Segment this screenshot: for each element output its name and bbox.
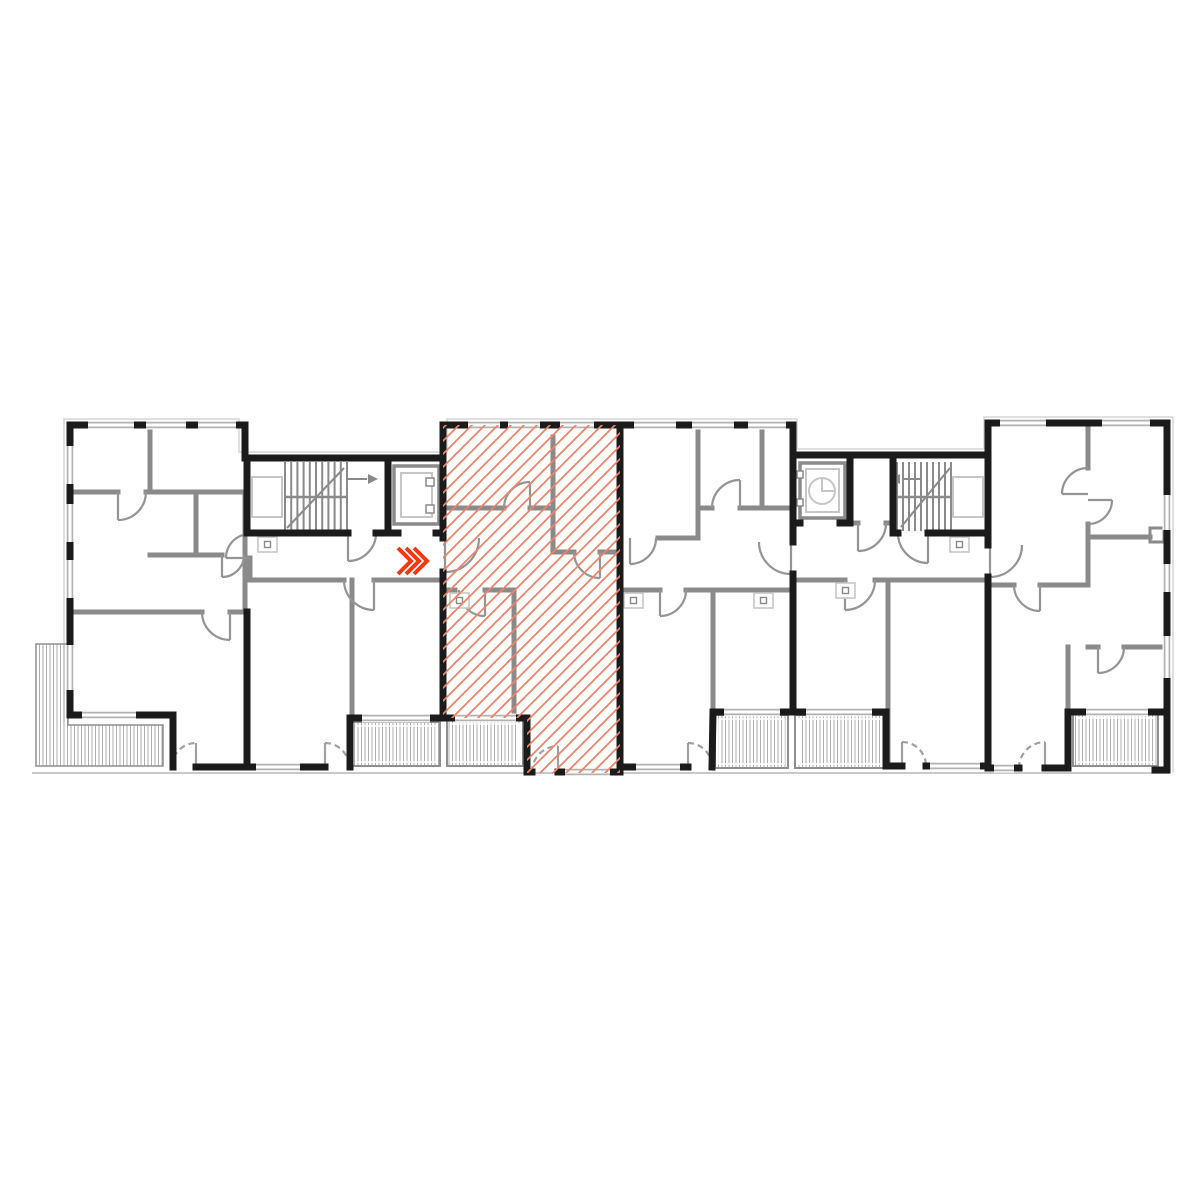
floor-plan-svg: [0, 0, 1200, 1200]
staircase-right: [890, 462, 983, 531]
balcony: [795, 715, 886, 768]
balcony: [715, 715, 788, 768]
floor-plan-page: [0, 0, 1200, 1200]
balcony: [1073, 714, 1158, 766]
staircase-left: [252, 462, 378, 531]
terrace: [36, 644, 163, 766]
balcony: [447, 720, 523, 766]
entrance-marker[interactable]: [398, 548, 427, 574]
balcony: [352, 722, 440, 766]
